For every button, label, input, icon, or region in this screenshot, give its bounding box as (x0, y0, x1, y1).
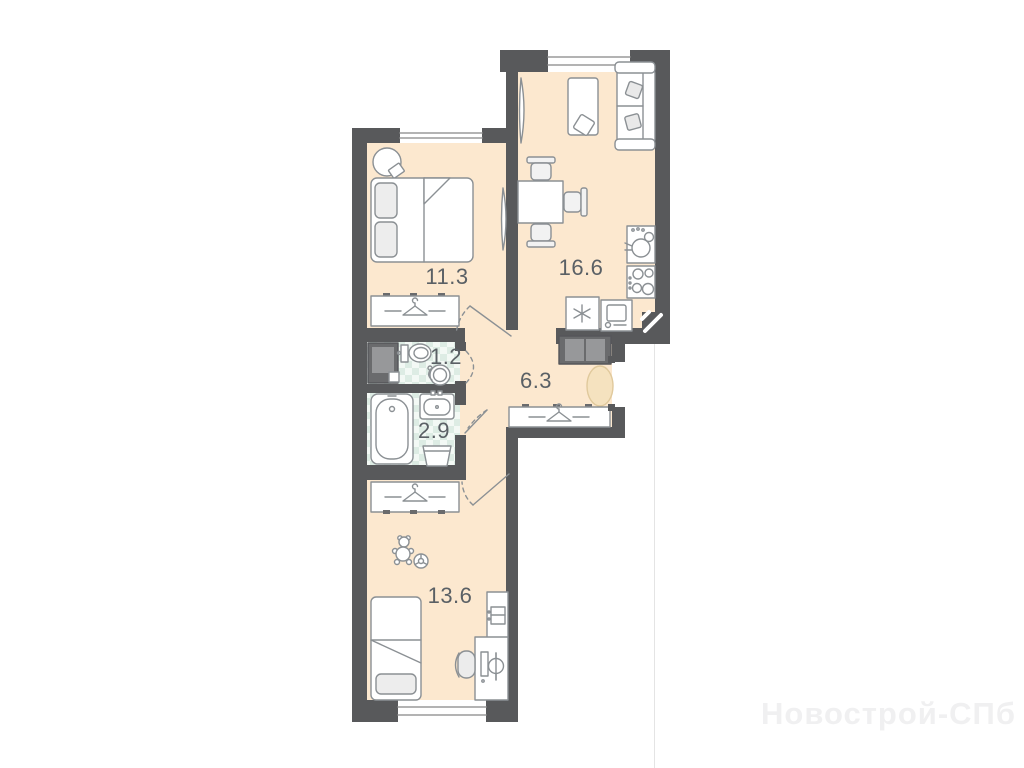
single-bed (371, 597, 421, 700)
service-cabinet (368, 343, 399, 383)
furniture-layer (0, 0, 1024, 768)
bedroom-area-label: 11.3 (425, 264, 468, 290)
door-swing (456, 306, 511, 505)
window (400, 128, 482, 143)
window (398, 700, 486, 722)
dishwasher (601, 300, 632, 331)
vent-shaft-icon (642, 312, 664, 334)
ball-icon (414, 554, 428, 568)
teddy-bear-icon (393, 536, 414, 565)
dining-table (518, 157, 587, 247)
pouf (373, 148, 405, 179)
wc-area-label: 1.2 (430, 344, 462, 370)
bathtub (371, 394, 413, 464)
building-axis-line (654, 344, 655, 768)
hall-wardrobe (509, 404, 610, 427)
double-bed (371, 178, 473, 262)
door-leaf (502, 78, 525, 250)
watermark: Новострой-СПб (761, 696, 1016, 732)
entry-bench (559, 336, 611, 364)
toilet (398, 344, 432, 362)
stove (627, 266, 655, 298)
bookshelf (487, 592, 508, 638)
rug (587, 366, 613, 406)
sofa (615, 62, 655, 150)
children-chair (456, 651, 476, 678)
bedroom-wardrobe (371, 293, 459, 326)
hallway-area-label: 6.3 (520, 368, 552, 394)
children-wardrobe (371, 482, 459, 514)
children-desk (475, 637, 508, 700)
bath-sink (420, 391, 454, 419)
children-room-area-label: 13.6 (428, 583, 473, 609)
living-kitchen-area-label: 16.6 (559, 255, 604, 281)
kitchen-sink (625, 226, 655, 263)
laundry-basket (423, 446, 451, 466)
bathroom-area-label: 2.9 (418, 418, 450, 444)
fridge (566, 297, 599, 330)
floor-plan: 11.3 16.6 1.2 2.9 6.3 13.6 Новострой-СПб (0, 0, 1024, 768)
